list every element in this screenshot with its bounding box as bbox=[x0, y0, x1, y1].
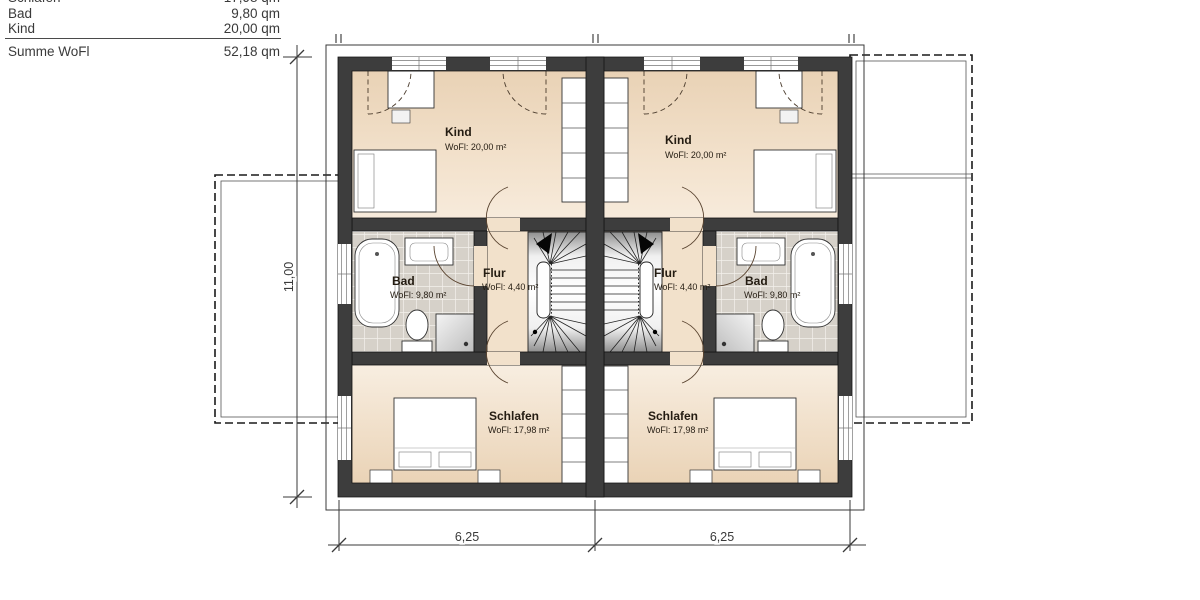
room-area-flur: WoFl: 4,40 m² bbox=[654, 282, 710, 292]
room-area-bad: WoFl: 9,80 m² bbox=[744, 290, 800, 300]
room-area-schlafen: WoFl: 17,98 m² bbox=[488, 425, 549, 435]
dashed-annex-right bbox=[850, 55, 972, 423]
dim-width-right-label: 6,25 bbox=[710, 530, 734, 544]
room-label-schlafen: Schlafen bbox=[489, 409, 539, 423]
axis-ticks bbox=[336, 34, 854, 43]
room-label-flur: Flur bbox=[483, 266, 506, 280]
room-label-schlafen: Schlafen bbox=[648, 409, 698, 423]
room-label-kind: Kind bbox=[665, 133, 692, 147]
dim-width-left-label: 6,25 bbox=[455, 530, 479, 544]
room-label-flur: Flur bbox=[654, 266, 677, 280]
room-area-kind: WoFl: 20,00 m² bbox=[665, 150, 726, 160]
unit-right bbox=[604, 71, 838, 488]
room-label-bad: Bad bbox=[745, 274, 768, 288]
dim-height-label: 11,00 bbox=[282, 262, 296, 292]
room-area-flur: WoFl: 4,40 m² bbox=[482, 282, 538, 292]
dashed-annex-left bbox=[215, 175, 340, 423]
floorplan-page: Schlafen 17,98 qm Bad 9,80 qm Kind 20,00… bbox=[0, 0, 1200, 600]
room-area-schlafen: WoFl: 17,98 m² bbox=[647, 425, 708, 435]
room-label-kind: Kind bbox=[445, 125, 472, 139]
party-wall bbox=[586, 57, 604, 497]
room-area-bad: WoFl: 9,80 m² bbox=[390, 290, 446, 300]
room-area-kind: WoFl: 20,00 m² bbox=[445, 142, 506, 152]
floorplan-drawing: 11,00 6,25 6,25 Kind WoFl: 20,00 m² Bad … bbox=[0, 0, 1200, 600]
room-label-bad: Bad bbox=[392, 274, 415, 288]
dimension-horizontal: 6,25 6,25 bbox=[328, 500, 866, 552]
